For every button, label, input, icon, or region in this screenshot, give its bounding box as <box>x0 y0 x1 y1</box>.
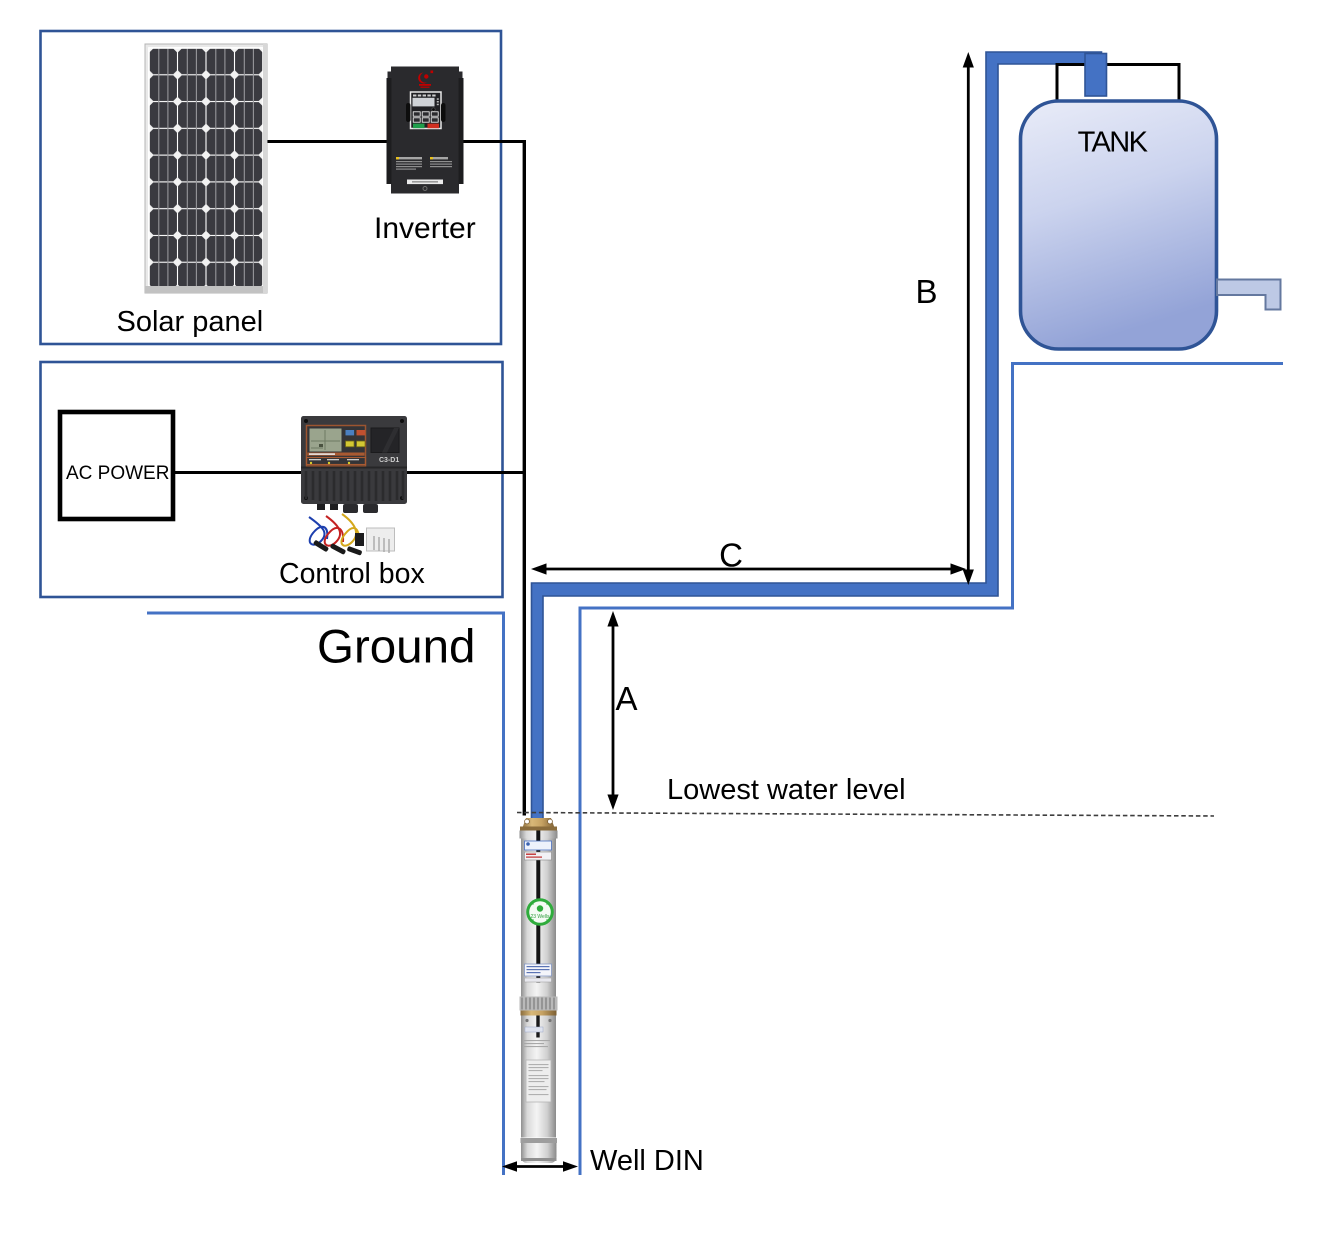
svg-text:Solar panel: Solar panel <box>117 306 264 338</box>
svg-text:B: B <box>915 273 937 310</box>
svg-text:Ground: Ground <box>317 621 475 674</box>
svg-text:C3-D1: C3-D1 <box>379 457 399 464</box>
svg-text:TANK: TANK <box>1078 127 1149 159</box>
svg-text:C: C <box>719 537 743 574</box>
svg-text:A: A <box>615 680 637 717</box>
svg-text:AC POWER: AC POWER <box>66 463 169 484</box>
svg-text:Inverter: Inverter <box>374 212 476 245</box>
svg-text:23 Wells: 23 Wells <box>530 914 550 920</box>
svg-text:Well DIN: Well DIN <box>590 1145 704 1177</box>
svg-text:Lowest water level: Lowest water level <box>667 774 906 806</box>
svg-text:Control box: Control box <box>279 558 425 590</box>
